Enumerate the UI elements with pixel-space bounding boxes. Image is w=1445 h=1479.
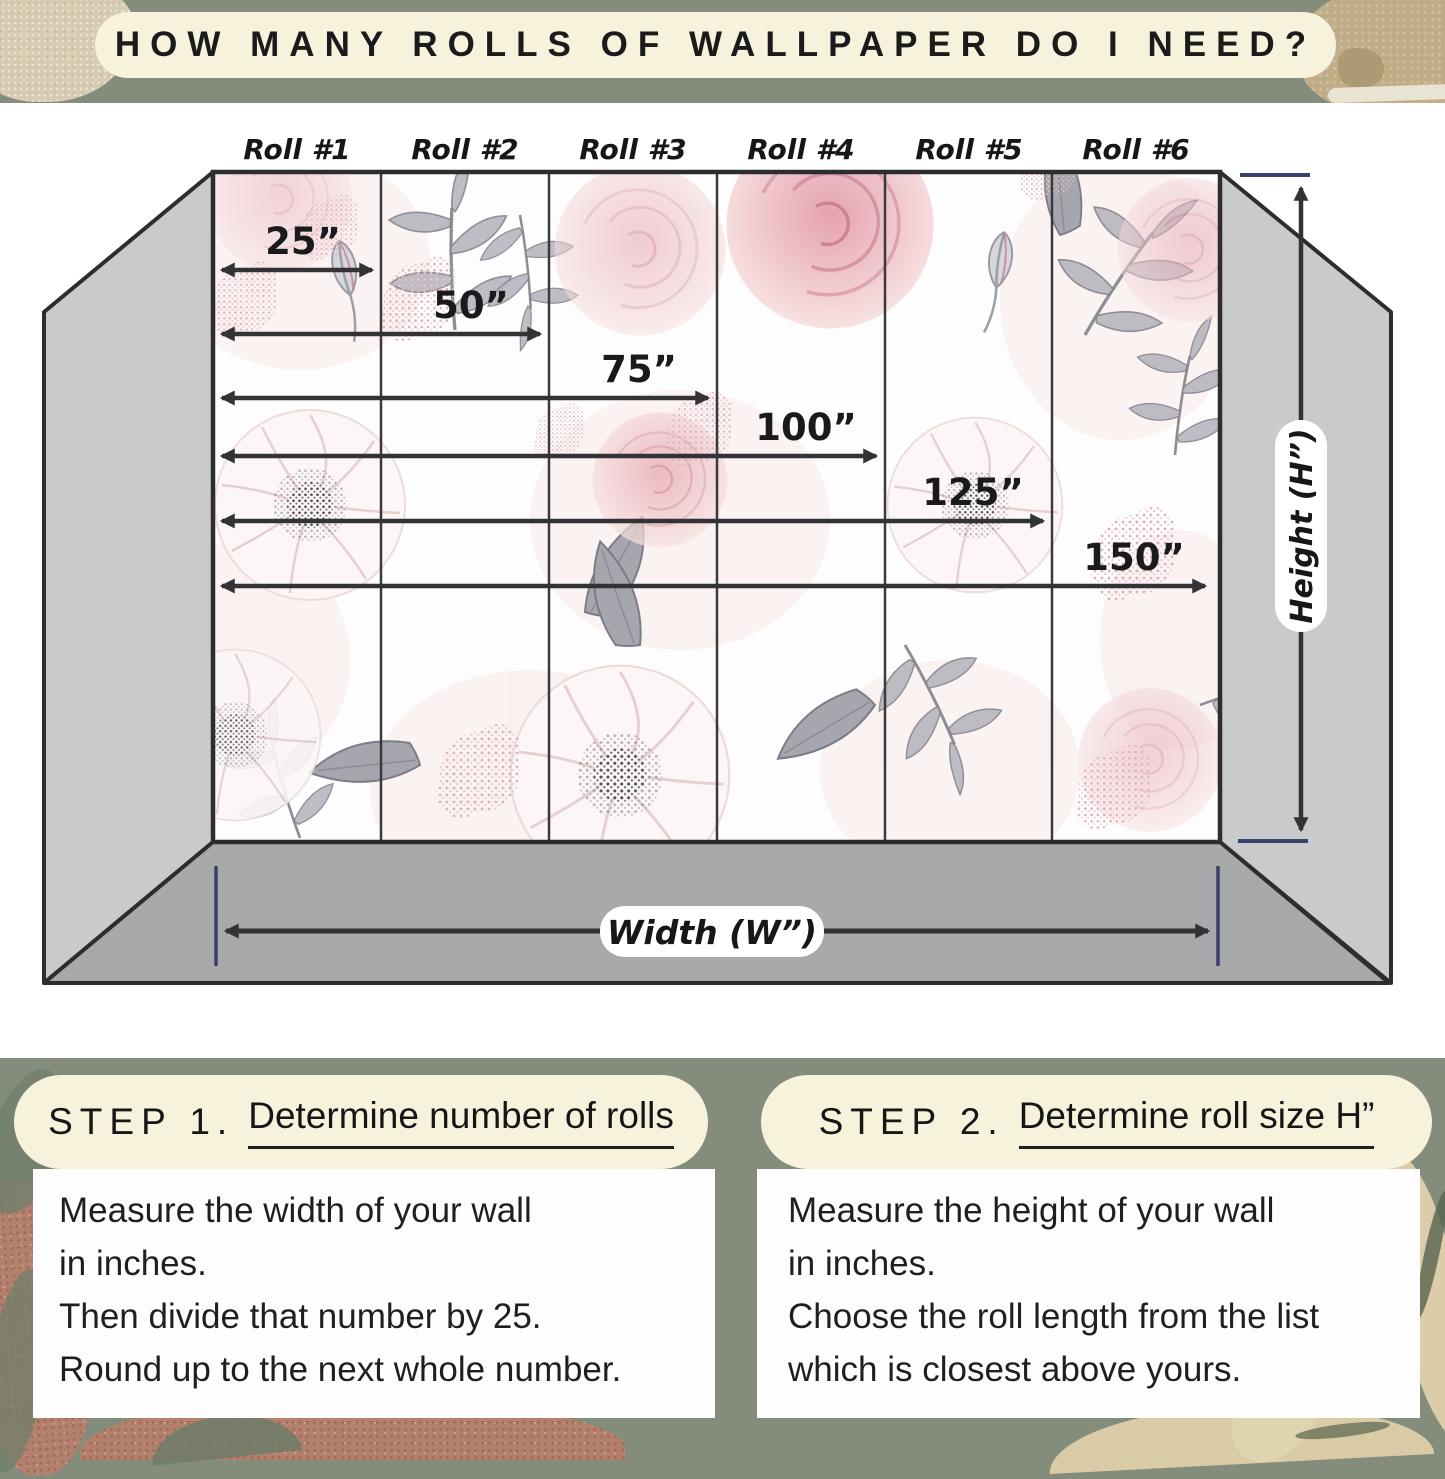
roll-labels: Roll #1 Roll #2 Roll #3 Roll #4 Roll #5 … bbox=[243, 133, 1189, 166]
step1-line: in inches. bbox=[59, 1237, 715, 1290]
wallpaper-infographic: { "title": "HOW MANY ROLLS OF WALLPAPER … bbox=[0, 0, 1445, 1445]
width-label: Width (W”) bbox=[607, 913, 817, 952]
roll-label-3: Roll #3 bbox=[579, 133, 686, 166]
step2-line: in inches. bbox=[788, 1237, 1420, 1290]
roll-label-6: Roll #6 bbox=[1082, 133, 1189, 166]
step2-number: STEP 2. bbox=[819, 1101, 1005, 1143]
measurement-label-100: 100” bbox=[755, 406, 857, 449]
step2-card: Measure the height of your wall in inche… bbox=[757, 1169, 1420, 1418]
step1-line: Measure the width of your wall bbox=[59, 1184, 715, 1237]
title-banner: HOW MANY ROLLS OF WALLPAPER DO I NEED? bbox=[95, 12, 1336, 78]
step2-line: Choose the roll length from the list bbox=[788, 1290, 1420, 1343]
roll-label-4: Roll #4 bbox=[747, 133, 854, 166]
step1-line: Then divide that number by 25. bbox=[59, 1290, 715, 1343]
measurement-label-150: 150” bbox=[1083, 536, 1185, 579]
step1-line: Round up to the next whole number. bbox=[59, 1343, 715, 1396]
step1-card: Measure the width of your wall in inches… bbox=[33, 1169, 715, 1418]
step2-line: Measure the height of your wall bbox=[788, 1184, 1420, 1237]
step2-line: which is closest above yours. bbox=[788, 1343, 1420, 1396]
measurement-label-75: 75” bbox=[601, 348, 677, 391]
page-title: HOW MANY ROLLS OF WALLPAPER DO I NEED? bbox=[115, 25, 1316, 65]
measurement-label-25: 25” bbox=[265, 220, 341, 263]
step2-header: STEP 2. Determine roll size H” bbox=[761, 1075, 1432, 1169]
step1-title: Determine number of rolls bbox=[248, 1095, 674, 1149]
step2-title: Determine roll size H” bbox=[1019, 1095, 1375, 1149]
height-label: Height (H”) bbox=[1285, 428, 1320, 623]
step1-header: STEP 1. Determine number of rolls bbox=[14, 1075, 708, 1169]
roll-label-1: Roll #1 bbox=[243, 133, 350, 166]
roll-label-5: Roll #5 bbox=[915, 133, 1022, 166]
roll-label-2: Roll #2 bbox=[411, 133, 518, 166]
step1-number: STEP 1. bbox=[48, 1101, 234, 1143]
measurement-label-125: 125” bbox=[922, 471, 1024, 514]
measurement-label-50: 50” bbox=[433, 284, 509, 327]
